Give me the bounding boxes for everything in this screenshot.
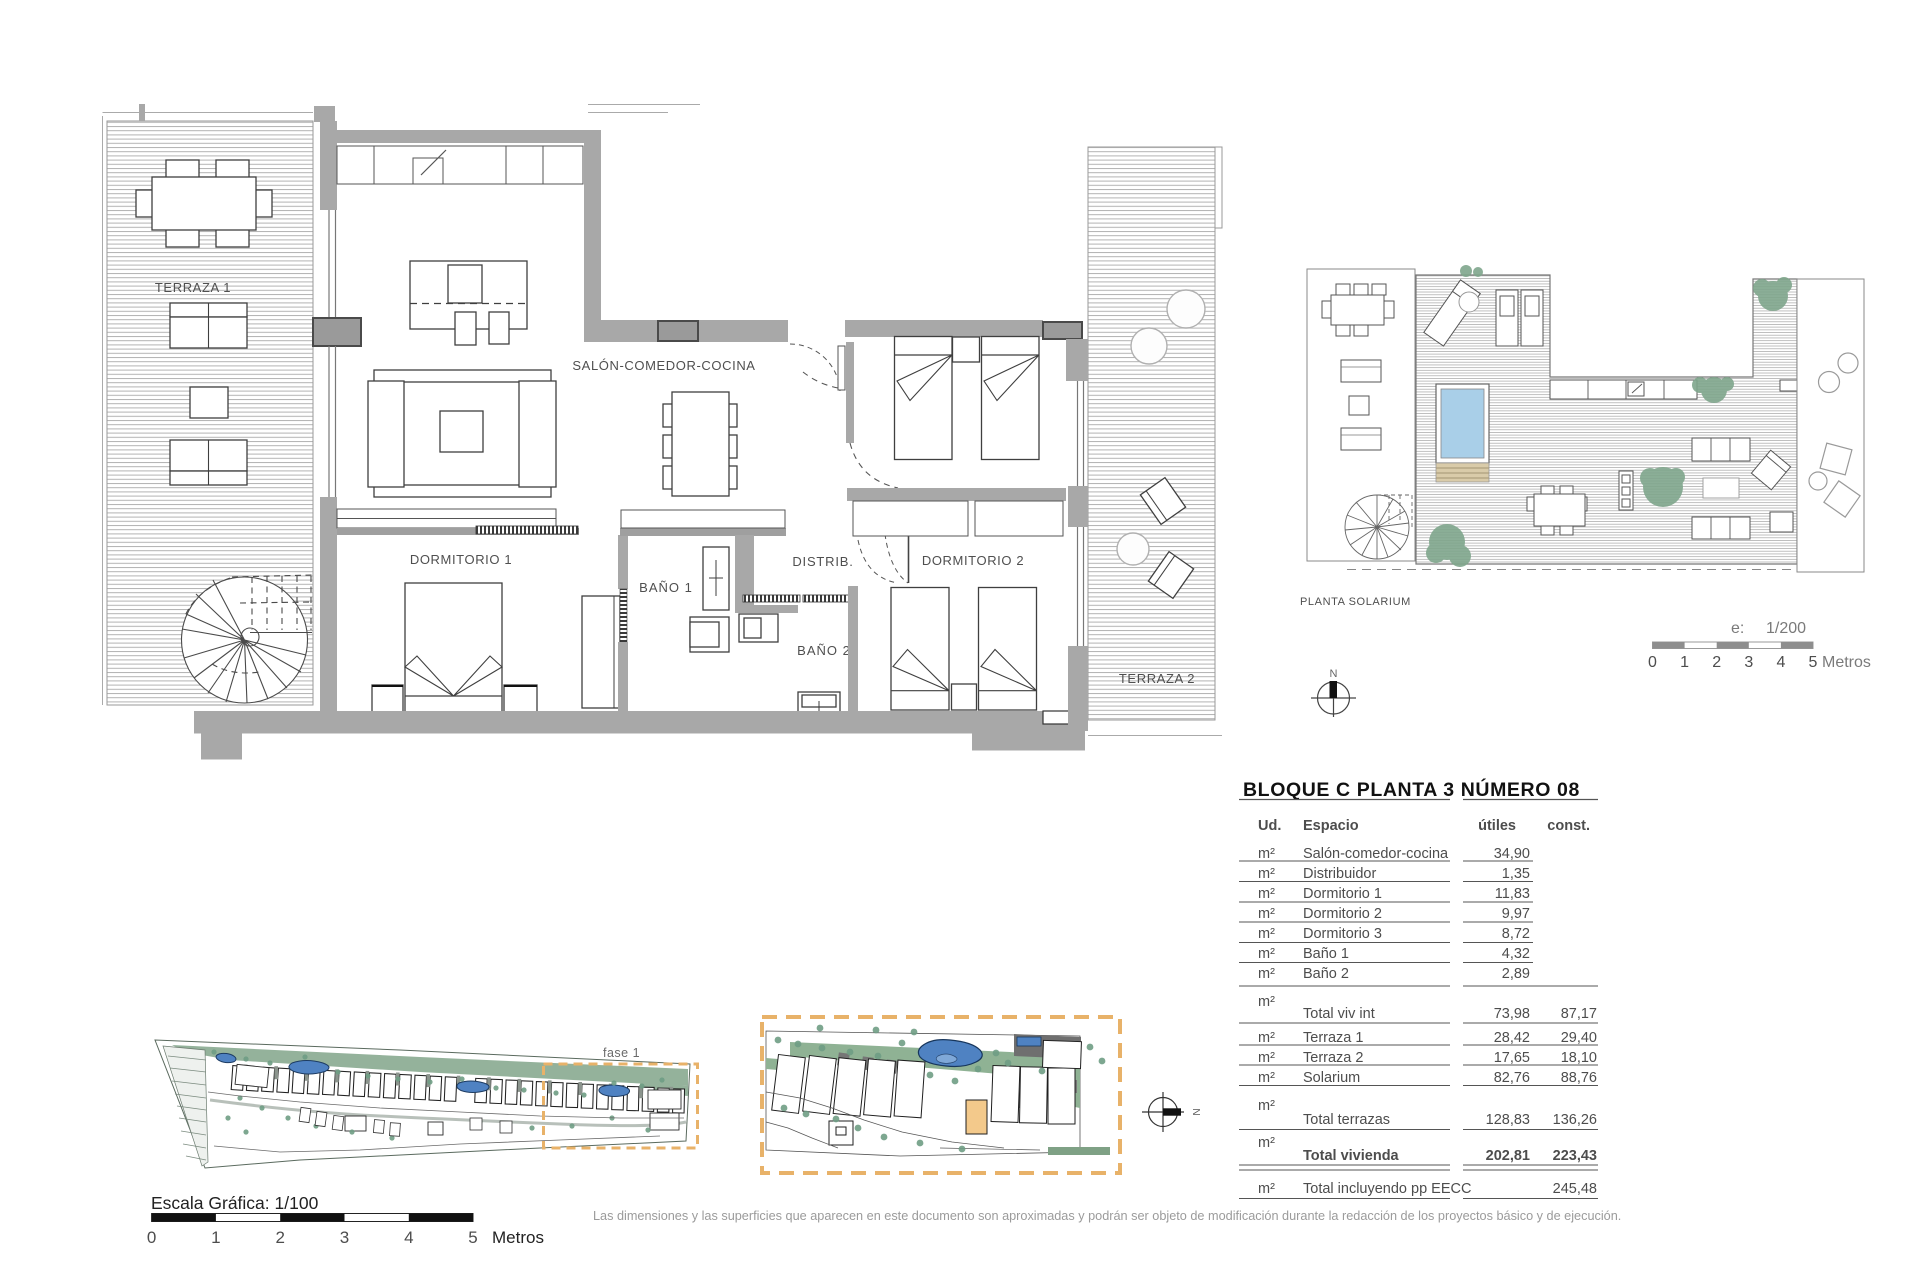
svg-text:0: 0 xyxy=(1648,654,1657,671)
svg-text:PLANTA SOLARIUM: PLANTA SOLARIUM xyxy=(1300,596,1411,608)
svg-text:1: 1 xyxy=(211,1228,220,1247)
svg-text:fase 1: fase 1 xyxy=(603,1046,640,1060)
svg-text:m²: m² xyxy=(1258,946,1275,962)
svg-text:Escala Gráfica: 1/100: Escala Gráfica: 1/100 xyxy=(151,1193,319,1213)
svg-text:DORMITORIO 1: DORMITORIO 1 xyxy=(410,552,512,567)
svg-text:245,48: 245,48 xyxy=(1553,1181,1597,1197)
svg-text:BLOQUE C PLANTA 3 NÚMERO 08: BLOQUE C PLANTA 3 NÚMERO 08 xyxy=(1243,777,1580,801)
svg-text:Total incluyendo pp EECC: Total incluyendo pp EECC xyxy=(1303,1181,1471,1197)
svg-text:1: 1 xyxy=(1680,654,1689,671)
svg-text:4: 4 xyxy=(1776,654,1785,671)
svg-text:N: N xyxy=(1190,1108,1201,1115)
svg-text:m²: m² xyxy=(1258,1030,1275,1046)
svg-text:Dormitorio 2: Dormitorio 2 xyxy=(1303,906,1382,922)
svg-text:5: 5 xyxy=(468,1228,477,1247)
svg-text:2: 2 xyxy=(1712,654,1721,671)
svg-text:Total viv int: Total viv int xyxy=(1303,1006,1375,1022)
svg-text:Solarium: Solarium xyxy=(1303,1070,1360,1086)
svg-text:17,65: 17,65 xyxy=(1494,1050,1530,1066)
svg-text:m²: m² xyxy=(1258,1135,1275,1151)
svg-text:34,90: 34,90 xyxy=(1494,846,1530,862)
svg-text:Baño 2: Baño 2 xyxy=(1303,966,1349,982)
svg-text:Salón-comedor-cocina: Salón-comedor-cocina xyxy=(1303,846,1449,862)
svg-text:0: 0 xyxy=(147,1228,156,1247)
svg-text:TERRAZA 1: TERRAZA 1 xyxy=(155,280,231,295)
svg-text:m²: m² xyxy=(1258,966,1275,982)
svg-text:2: 2 xyxy=(275,1228,284,1247)
svg-text:m²: m² xyxy=(1258,906,1275,922)
svg-text:const.: const. xyxy=(1547,818,1590,834)
svg-text:DORMITORIO 2: DORMITORIO 2 xyxy=(922,553,1024,568)
svg-text:Dormitorio 1: Dormitorio 1 xyxy=(1303,886,1382,902)
svg-text:1,35: 1,35 xyxy=(1502,866,1530,882)
svg-text:m²: m² xyxy=(1258,994,1275,1010)
svg-text:N: N xyxy=(1330,668,1338,680)
svg-text:útiles: útiles xyxy=(1478,818,1516,834)
svg-text:82,76: 82,76 xyxy=(1494,1070,1530,1086)
svg-text:5: 5 xyxy=(1809,654,1818,671)
svg-text:18,10: 18,10 xyxy=(1561,1050,1597,1066)
svg-text:4: 4 xyxy=(404,1228,413,1247)
svg-text:9,97: 9,97 xyxy=(1502,906,1530,922)
svg-text:SALÓN-COMEDOR-COCINA: SALÓN-COMEDOR-COCINA xyxy=(572,358,755,373)
svg-text:223,43: 223,43 xyxy=(1553,1148,1597,1164)
svg-text:Baño 1: Baño 1 xyxy=(1303,946,1349,962)
svg-text:Terraza 2: Terraza 2 xyxy=(1303,1050,1363,1066)
svg-text:28,42: 28,42 xyxy=(1494,1030,1530,1046)
svg-text:2,89: 2,89 xyxy=(1502,966,1530,982)
svg-text:m²: m² xyxy=(1258,886,1275,902)
svg-text:136,26: 136,26 xyxy=(1553,1112,1597,1128)
svg-text:TERRAZA 2: TERRAZA 2 xyxy=(1119,671,1195,686)
svg-text:128,83: 128,83 xyxy=(1486,1112,1530,1128)
svg-text:Terraza 1: Terraza 1 xyxy=(1303,1030,1363,1046)
svg-text:Ud.: Ud. xyxy=(1258,818,1281,834)
svg-text:m²: m² xyxy=(1258,846,1275,862)
svg-text:29,40: 29,40 xyxy=(1561,1030,1597,1046)
svg-text:Metros: Metros xyxy=(1822,654,1871,671)
svg-text:DISTRIB.: DISTRIB. xyxy=(792,554,853,569)
svg-text:m²: m² xyxy=(1258,926,1275,942)
svg-text:3: 3 xyxy=(1744,654,1753,671)
svg-text:4,32: 4,32 xyxy=(1502,946,1530,962)
svg-text:73,98: 73,98 xyxy=(1494,1006,1530,1022)
svg-text:11,83: 11,83 xyxy=(1495,886,1530,902)
svg-text:Las dimensiones y las superfic: Las dimensiones y las superficies que ap… xyxy=(593,1209,1621,1223)
svg-text:m²: m² xyxy=(1258,1181,1275,1197)
svg-text:m²: m² xyxy=(1258,1070,1275,1086)
svg-text:88,76: 88,76 xyxy=(1561,1070,1597,1086)
svg-text:m²: m² xyxy=(1258,866,1275,882)
svg-text:1/200: 1/200 xyxy=(1766,620,1806,637)
svg-text:m²: m² xyxy=(1258,1050,1275,1066)
svg-text:8,72: 8,72 xyxy=(1502,926,1530,942)
svg-text:BAÑO 2: BAÑO 2 xyxy=(797,643,851,658)
svg-text:Total vivienda: Total vivienda xyxy=(1303,1148,1400,1164)
svg-text:202,81: 202,81 xyxy=(1486,1148,1530,1164)
svg-text:Total terrazas: Total terrazas xyxy=(1303,1112,1390,1128)
svg-text:BAÑO 1: BAÑO 1 xyxy=(639,580,693,595)
svg-text:Metros: Metros xyxy=(492,1228,544,1247)
svg-text:Dormitorio 3: Dormitorio 3 xyxy=(1303,926,1382,942)
svg-text:3: 3 xyxy=(340,1228,349,1247)
svg-text:e:: e: xyxy=(1731,620,1744,637)
svg-text:87,17: 87,17 xyxy=(1561,1006,1597,1022)
svg-text:m²: m² xyxy=(1258,1098,1275,1114)
svg-text:Espacio: Espacio xyxy=(1303,818,1359,834)
svg-text:Distribuidor: Distribuidor xyxy=(1303,866,1376,882)
